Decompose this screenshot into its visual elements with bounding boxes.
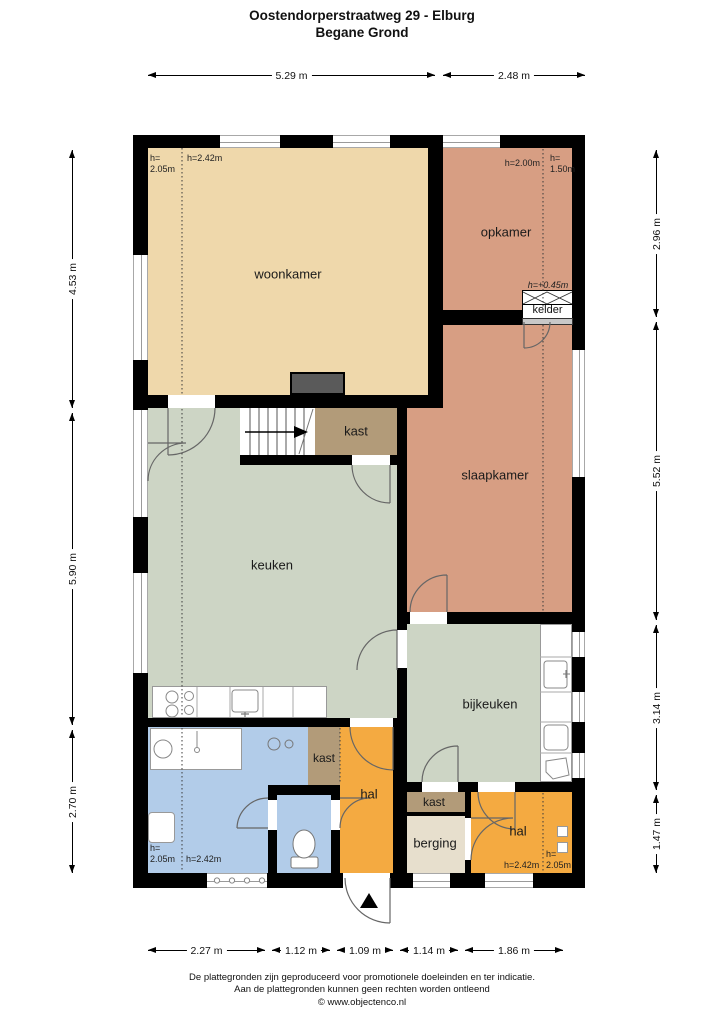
meter-box-1 [557, 826, 568, 837]
door-opening-toilet-west [268, 800, 277, 830]
dim-right-2: 5.52 m [656, 322, 657, 620]
entrance-arrow-icon [360, 893, 378, 908]
window-opkamer-top [443, 135, 500, 148]
kelder-hatch [522, 290, 573, 305]
door-opening-keuken-bijkeuken [397, 630, 407, 668]
dim-left-2-label: 5.90 m [67, 549, 79, 589]
disclaimer-line-1: De plattegronden zijn geproduceerd voor … [0, 972, 724, 984]
dim-right-4-label: 1.47 m [651, 814, 663, 854]
dim-right-1: 2.96 m [656, 150, 657, 317]
label-slaapkamer: slaapkamer [461, 468, 528, 483]
room-slaapkamer-upper [443, 325, 572, 408]
dim-top-1-label: 5.29 m [271, 70, 311, 82]
staircase [240, 408, 315, 455]
window-hal-bottom [485, 873, 533, 888]
dim-right-3-label: 3.14 m [651, 687, 663, 727]
window-woonkamer-top-1 [220, 135, 280, 148]
door-opening-kast-trap [352, 455, 390, 465]
dim-bottom-4: 1.14 m [400, 950, 458, 951]
height-woonkamer-right: h=2.42m [187, 153, 222, 164]
door-opening-woonkamer-keuken [168, 395, 215, 408]
floorplan-page: Oostendorperstraatweg 29 - Elburg Begane… [0, 0, 724, 1024]
label-berging: berging [413, 836, 456, 851]
window-berging-bottom [413, 873, 450, 888]
height-opkamer-right: h= 1.50m [550, 153, 575, 175]
label-kast-badkamer: kast [313, 751, 335, 765]
bijkeuken-counter [540, 624, 572, 782]
disclaimer: De plattegronden zijn geproduceerd voor … [0, 972, 724, 1009]
window-woonkamer-top-2 [333, 135, 390, 148]
label-keuken: keuken [251, 558, 293, 573]
kitchen-counter [152, 686, 327, 718]
dim-bottom-2-label: 1.12 m [281, 945, 321, 957]
label-opkamer: opkamer [481, 225, 532, 240]
height-hal-right: h= 2.05m [546, 849, 571, 871]
address-title: Oostendorperstraatweg 29 - Elburg [0, 8, 724, 25]
window-bijkeuken-right-2 [572, 692, 585, 722]
plan-title: Oostendorperstraatweg 29 - Elburg Begane… [0, 8, 724, 42]
height-badkamer-left: h= 2.05m [150, 843, 175, 865]
window-badkamer-bottom [207, 873, 267, 888]
disclaimer-line-2: Aan de plattegronden kunnen geen rechten… [0, 984, 724, 996]
window-door-keuken-left [133, 410, 148, 517]
dim-top-1: 5.29 m [148, 75, 435, 76]
height-opkamer-left: h=2.00m [495, 158, 540, 169]
dim-bottom-1: 2.27 m [148, 950, 265, 951]
window-bijkeuken-right-1 [572, 632, 585, 657]
toilet-wall-top [268, 785, 340, 795]
dim-bottom-3: 1.09 m [337, 950, 393, 951]
copyright: © www.objectenco.nl [0, 997, 724, 1009]
dim-top-2: 2.48 m [443, 75, 585, 76]
dim-top-2-label: 2.48 m [494, 70, 534, 82]
door-opening-bijkeuken-hal [478, 782, 515, 792]
label-kast-trap: kast [344, 424, 368, 439]
window-keuken-left [133, 573, 148, 673]
door-opening-kast-bijkeuken [422, 782, 458, 792]
dim-bottom-3-label: 1.09 m [345, 945, 385, 957]
dim-left-1-label: 4.53 m [67, 259, 79, 299]
height-kelder: h=+0.45m [528, 280, 569, 291]
height-woonkamer-left: h= 2.05m [150, 153, 175, 175]
door-opening-toilet-east [331, 800, 340, 830]
window-woonkamer-left [133, 255, 148, 360]
fireplace [290, 372, 345, 395]
dim-bottom-5: 1.86 m [465, 950, 563, 951]
dim-left-1: 4.53 m [72, 150, 73, 408]
room-slaapkamer [407, 408, 572, 612]
door-opening-slaapkamer-bijkeuken [410, 612, 447, 624]
label-woonkamer: woonkamer [254, 267, 321, 282]
dim-bottom-4-label: 1.14 m [409, 945, 449, 957]
window-slaapkamer-right [572, 350, 585, 477]
bathroom-counter [150, 728, 242, 770]
kelder-label-box: kelder [522, 304, 573, 319]
window-bijkeuken-right-3 [572, 753, 585, 778]
label-bijkeuken: bijkeuken [463, 697, 518, 712]
dim-bottom-2: 1.12 m [272, 950, 330, 951]
label-hal-west: hal [360, 787, 377, 802]
washing-machine [148, 812, 175, 843]
door-opening-berging-hal [465, 818, 471, 860]
dim-bottom-5-label: 1.86 m [494, 945, 534, 957]
label-hal-east: hal [509, 824, 526, 839]
label-kast-bijkeuken: kast [423, 795, 445, 809]
dim-left-3: 2.70 m [72, 730, 73, 873]
dim-right-4: 1.47 m [656, 795, 657, 873]
dim-right-2-label: 5.52 m [651, 451, 663, 491]
height-badkamer-right: h=2.42m [186, 854, 221, 865]
dim-right-1-label: 2.96 m [651, 213, 663, 253]
height-hal-left: h=2.42m [504, 860, 539, 871]
dim-left-2: 5.90 m [72, 413, 73, 725]
kelder-label: kelder [533, 304, 563, 316]
dim-bottom-1-label: 2.27 m [186, 945, 226, 957]
door-opening-keuken-hal [350, 718, 393, 727]
floor-title: Begane Grond [0, 25, 724, 42]
front-door-opening [343, 873, 390, 888]
kelder-step [522, 318, 573, 325]
dim-right-3: 3.14 m [656, 625, 657, 790]
dim-left-3-label: 2.70 m [67, 781, 79, 821]
